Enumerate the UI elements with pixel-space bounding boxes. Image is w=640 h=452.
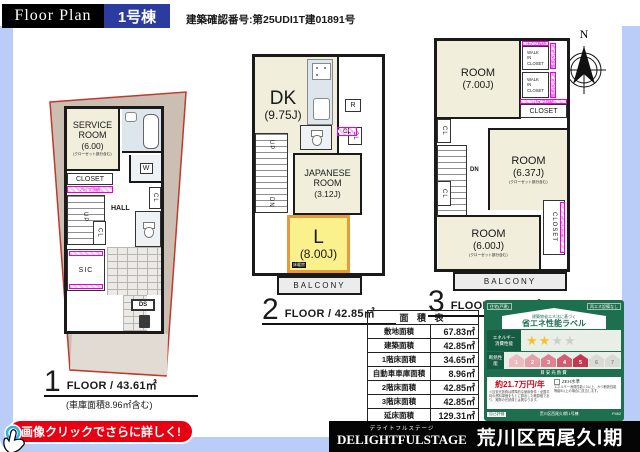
star-empty-icon: ★ — [551, 333, 564, 349]
balcony-3f: BALCONY — [453, 272, 567, 291]
closet-label: CLOSET — [520, 104, 567, 118]
area-table: 面 積 表 敷地面積67.83㎡ 建築面積42.85㎡ 1階床面積34.65㎡ … — [367, 310, 479, 437]
sic-label: SIC — [79, 267, 94, 274]
insulation-row-label: 断熱性能 — [487, 352, 504, 369]
label-footer-project: 荒川区西尾久Ⅰ期 1号棟 — [540, 411, 578, 417]
svg-text:N: N — [580, 27, 589, 41]
energy-row-label: エネルギー 消費性能 — [487, 330, 521, 351]
room-size: (6.00J) — [473, 241, 504, 252]
zeh-note: エネルギー消費性能☆3以上、かつ断熱性能等級5以上の場合に該当します。 — [554, 385, 619, 393]
insulation-row: 断熱性能 1234567 — [487, 352, 621, 369]
up-label: UP — [268, 140, 274, 150]
energy-row: エネルギー 消費性能 ★★★★ — [487, 330, 621, 351]
page-title: Floor Plan — [2, 4, 104, 28]
star-filled-icon: ★ — [539, 333, 552, 349]
project-title: 荒川区西尾久Ⅰ期 — [477, 423, 624, 450]
label-footer-code: P462 — [612, 412, 621, 416]
insulation-level-icon: 6 — [589, 354, 604, 367]
pipe-storage-label: パイプ収納 — [550, 43, 556, 69]
room-note: (クローゼット部分含む) — [469, 252, 507, 257]
room-name: SERVICE ROOM — [73, 121, 112, 141]
brand-name: DELIGHTFULSTAGE — [337, 433, 467, 446]
fridge-space-label: R — [345, 99, 361, 112]
table-row: 3階床面積42.85㎡ — [368, 395, 479, 409]
table-row: 2階床面積42.85㎡ — [368, 381, 479, 395]
stove-icon — [312, 63, 331, 80]
floor-plan-flyer: Floor Plan 1号棟 建築確認番号:第25UDI1T建01891号 N … — [0, 0, 640, 452]
living-room: L (8.00J) 床暖房 — [287, 215, 350, 273]
table-row: 敷地面積67.83㎡ — [368, 325, 479, 339]
cl-label: CL — [437, 119, 451, 143]
room-size: (6.00) — [81, 141, 103, 151]
pipe-storage-label: パイプ収納 — [550, 72, 556, 98]
cost-panel: 約21.7万円/年 ※目安光熱費は標準的な使用条件・全国平均の燃料単価をもとに算… — [487, 377, 621, 409]
room-note: (クローゼット部分含む) — [73, 151, 111, 156]
water-heater-icon — [139, 315, 150, 328]
kitchen-counter — [307, 59, 333, 125]
room-6j: ROOM (6.00J) (クローゼット部分含む) — [438, 215, 541, 269]
permit-number: 建築確認番号:第25UDI1T建01891号 — [186, 12, 355, 27]
walk-in-closet: WALK IN CLOSET — [522, 72, 549, 98]
shelf-strip — [69, 251, 103, 256]
cost-value: 約21.7万円/年 — [489, 379, 551, 390]
bathroom — [122, 109, 161, 153]
floor-number: 2 — [262, 298, 279, 322]
brand-block: デライトフルステージ DELIGHTFULSTAGE — [337, 427, 467, 446]
star-filled-icon: ★ — [526, 333, 539, 349]
room-637j: ROOM (6.37J) (クローゼット部分含む) — [488, 128, 567, 210]
room-size: (9.75J) — [264, 108, 301, 122]
star-empty-icon: ★ — [564, 333, 577, 349]
hall-label: HALL — [111, 205, 130, 212]
room-name: ROOM — [471, 228, 505, 240]
housing-type-tag: 住宅(戸建) — [487, 303, 512, 310]
room-name: JAPANESE ROOM — [304, 169, 350, 189]
floor-area: FLOOR / 43.61㎡ — [67, 377, 157, 394]
footer-banner: デライトフルステージ DELIGHTFULSTAGE 荒川区西尾久Ⅰ期 — [329, 421, 640, 452]
room-7j: ROOM (7.00J) — [437, 41, 521, 119]
closet-label: CLOSET — [67, 173, 113, 185]
pipe-storage-label: パイプ収納 — [67, 186, 113, 193]
cost-note: ※目安光熱費は標準的な使用条件・全国平均の燃料単価をもとに算出した概算値であり、… — [489, 390, 551, 402]
washer-label: W — [140, 163, 153, 174]
room-name: ROOM — [511, 155, 545, 167]
unit-badge: 1号棟 — [104, 4, 170, 28]
up-label: UP — [82, 212, 88, 222]
room-size: (3.12J) — [314, 189, 340, 199]
insulation-level-icon: 5 — [573, 354, 588, 367]
insulation-level-icon: 7 — [605, 354, 620, 367]
cost-heading: 目安光熱費 — [487, 370, 621, 376]
area-table-title: 面 積 表 — [368, 311, 479, 325]
room-size: (8.00J) — [300, 247, 337, 261]
balcony-2f: BALCONY — [277, 276, 362, 295]
room-size: (7.00J) — [462, 80, 493, 91]
floor-number: 1 — [44, 370, 61, 394]
sink-icon — [125, 112, 137, 122]
service-room: SERVICE ROOM (6.00) (クローゼット部分含む) — [67, 109, 120, 171]
dn-label: DN — [268, 197, 274, 208]
room-name: ROOM — [461, 67, 495, 79]
toilet-room-2f — [300, 125, 332, 150]
room-note: (クローゼット部分含む) — [509, 179, 547, 184]
garage-note: (車庫面積8.96㎡含む) — [66, 398, 198, 411]
floor-area: FLOOR / 42.85㎡ — [285, 305, 375, 322]
more-details-label: 画像クリックでさらに詳しく! — [21, 423, 181, 440]
floor1-building: SERVICE ROOM (6.00) (クローゼット部分含む) W CLOSE… — [64, 106, 164, 334]
dn-label: DN — [470, 167, 479, 173]
room-size: (6.37J) — [513, 168, 544, 179]
insulation-scale: 1234567 — [504, 352, 621, 369]
unit-badge-text: 1号棟 — [118, 6, 156, 27]
label-header-main: 省エネ性能ラベル — [522, 320, 586, 328]
label-header: 建築物省エネ法に基づく 省エネ性能ラベル — [502, 308, 606, 329]
floor1-label: 1 FLOOR / 43.61㎡ (車庫面積8.96㎡含む) — [44, 370, 198, 411]
insulation-level-icon: 2 — [525, 354, 540, 367]
japanese-room: JAPANESE ROOM (3.12J) — [293, 153, 362, 215]
toilet-room-1f — [135, 211, 161, 247]
room-name: L — [313, 228, 324, 247]
table-row: 1階床面積34.65㎡ — [368, 353, 479, 367]
staircase-2f: UP DN — [255, 133, 288, 213]
insulation-level-icon: 3 — [541, 354, 556, 367]
shelf-strip — [69, 284, 103, 289]
cl-label: CL — [93, 221, 106, 245]
room-name: DK — [270, 89, 296, 108]
energy-performance-label: 住宅(戸建) 再エネ設備なし 建築物省エネ法に基づく 省エネ性能ラベル エネルギ… — [484, 300, 624, 421]
insulation-level-icon: 1 — [509, 354, 524, 367]
hand-pointer-icon — [0, 424, 36, 452]
self-assessment-chip: 自己評価 — [487, 412, 506, 417]
table-row: 自動車車庫面積8.96㎡ — [368, 367, 479, 381]
cl-label: CL — [437, 181, 451, 206]
insulation-level-icon: 4 — [557, 354, 572, 367]
bathtub-icon — [143, 114, 159, 149]
kitchen-sink-icon — [313, 98, 330, 120]
pipe-storage-label: パイプ収納 — [560, 202, 565, 253]
renewables-tag: 再エネ設備なし — [587, 303, 621, 310]
floor-heating-badge: 床暖房 — [292, 262, 306, 268]
table-row: 建築面積42.85㎡ — [368, 339, 479, 353]
walk-in-closet: WALK IN CLOSET — [522, 46, 549, 70]
laundry-room: W — [129, 155, 161, 183]
entrance-tiles — [107, 247, 161, 295]
energy-stars: ★★★★ — [521, 330, 621, 351]
label-footer: 自己評価 荒川区西尾久Ⅰ期 1号棟 P462 — [487, 410, 621, 418]
cl-label: CL — [337, 127, 357, 136]
floor3-building: ROOM (7.00J) パイプ収納 WALK IN CLOSET パイプ収納 … — [434, 38, 570, 272]
toilet-icon — [143, 222, 153, 237]
toilet-icon — [311, 130, 321, 145]
sic-room: SIC — [67, 249, 105, 291]
floor2-building: DK (9.75J) R CL CL UP DN JAPANESE ROOM (… — [252, 54, 385, 276]
page-title-text: Floor Plan — [14, 7, 91, 25]
cl-label: CL — [149, 187, 161, 209]
ds-duct-label: DS — [131, 299, 155, 311]
